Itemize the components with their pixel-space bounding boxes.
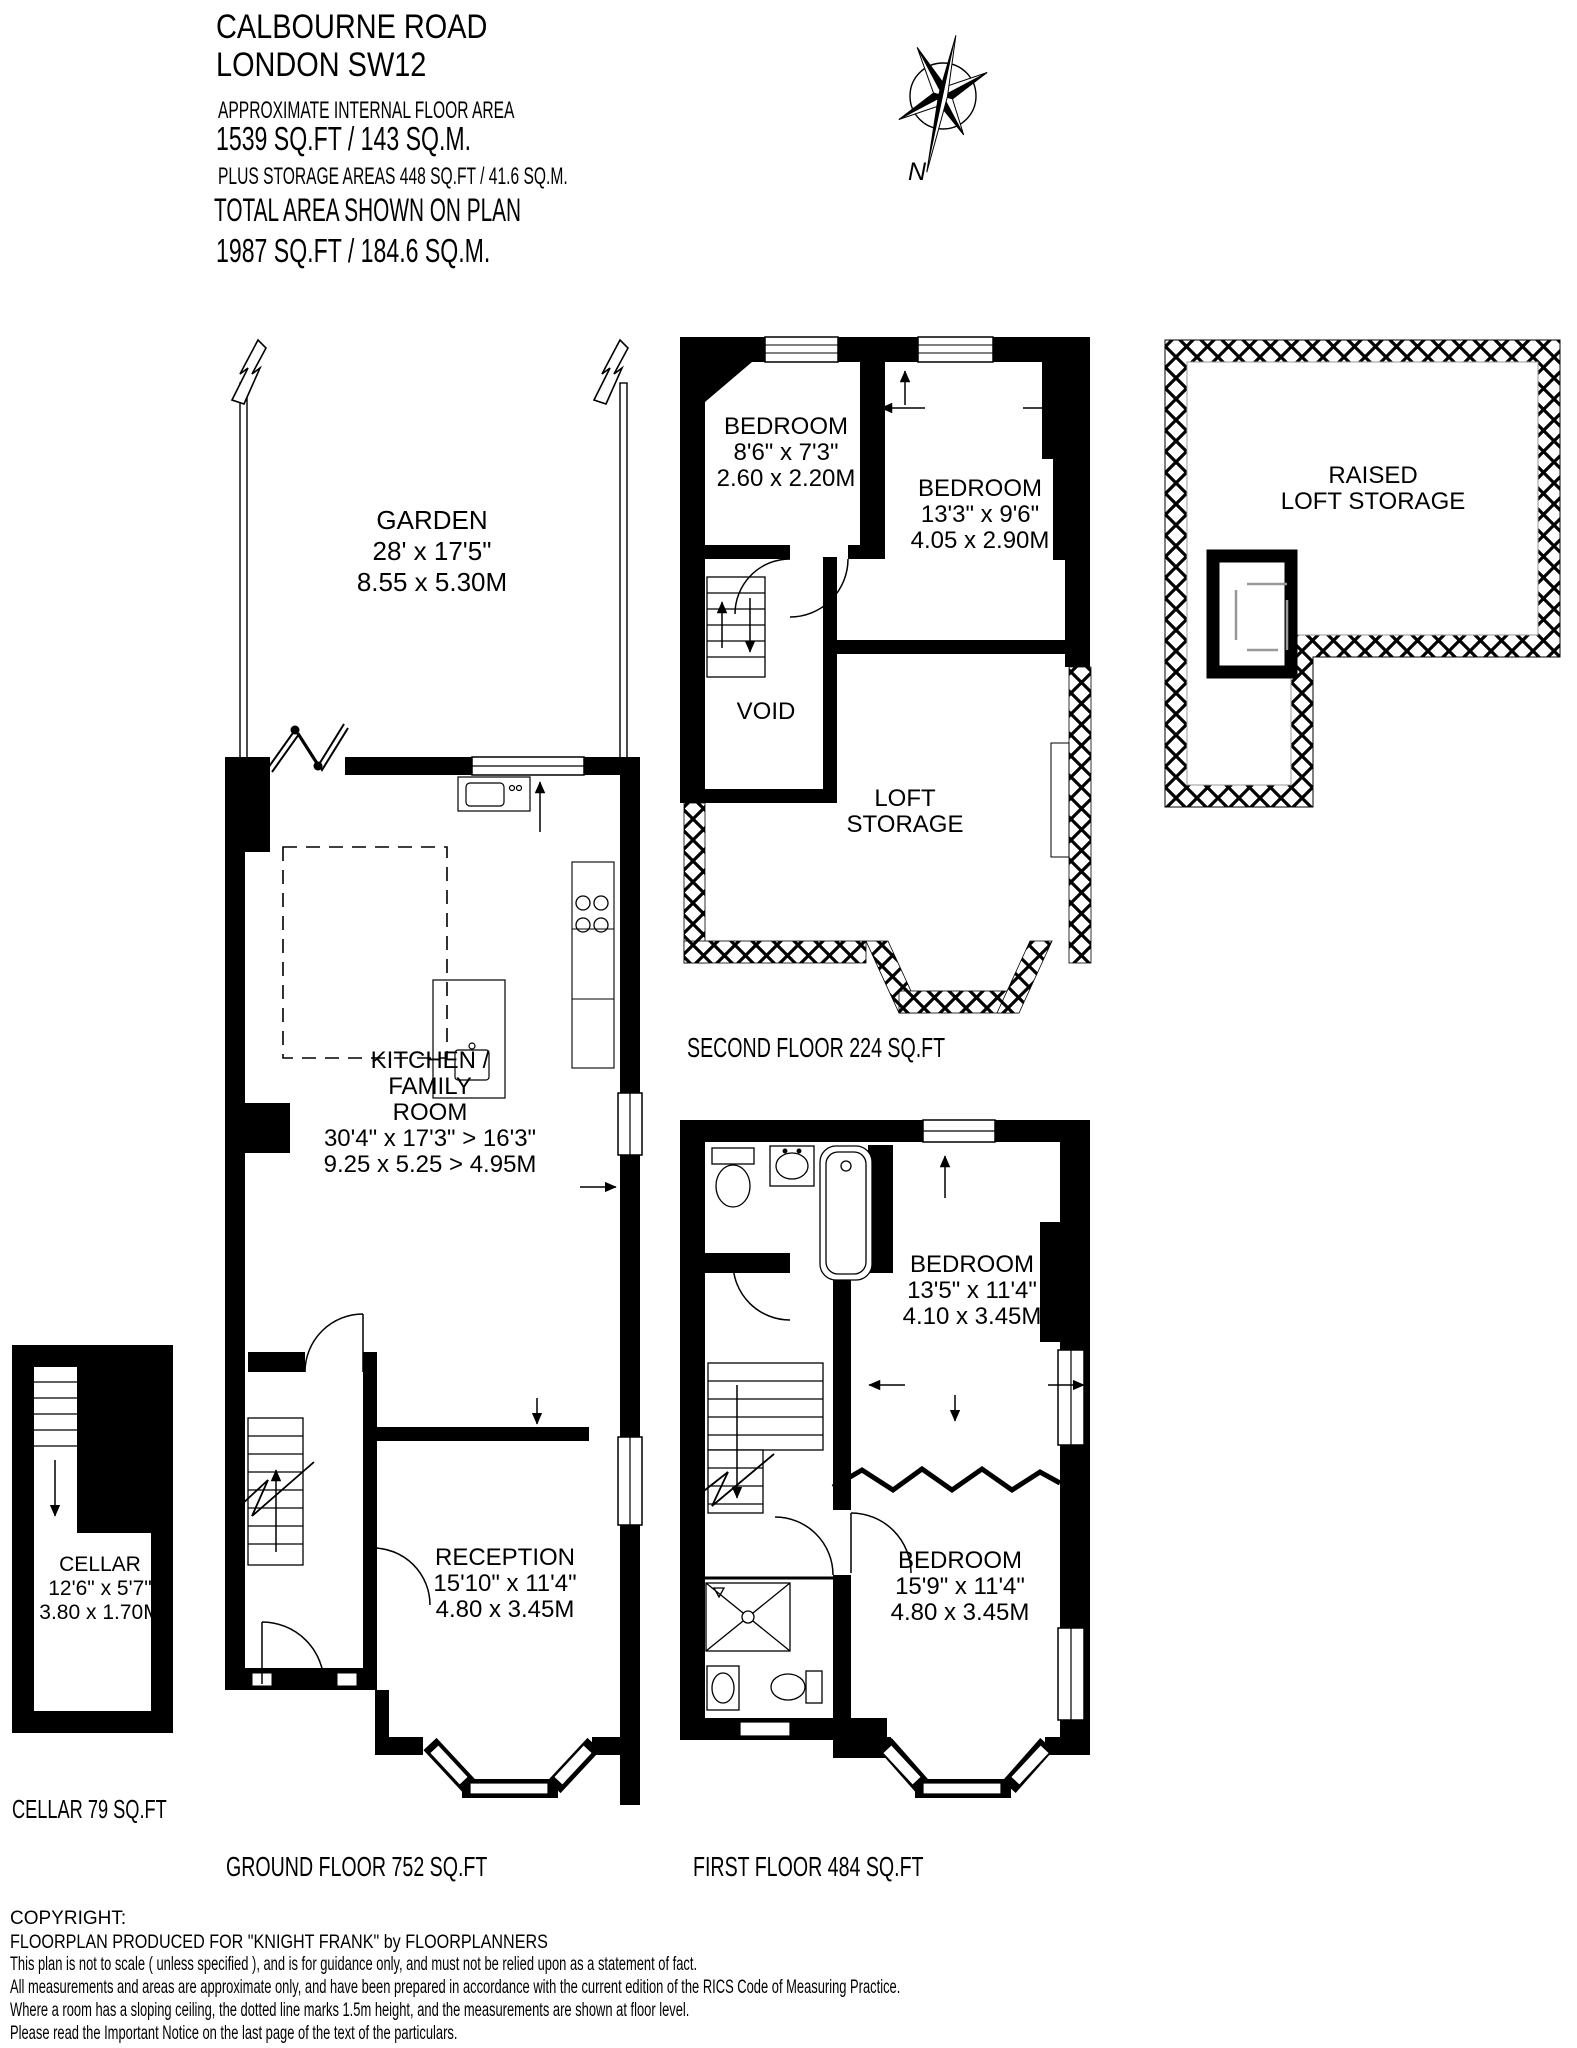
second-floor-caption: SECOND FLOOR 224 SQ.FT	[687, 1032, 1056, 1064]
approx-area-value: 1539 SQ.FT / 143 SQ.M.	[216, 120, 580, 158]
wardrobe-line	[833, 1469, 1060, 1490]
room-dims-ft: 30'4" x 17'3" > 16'3"	[324, 1126, 537, 1152]
storage-area-note: PLUS STORAGE AREAS 448 SQ.FT / 41.6 SQ.M…	[218, 163, 756, 191]
staircase	[240, 1418, 314, 1565]
room-dims-ft: 15'10" x 11'4"	[433, 1571, 576, 1597]
room-dims-m: 4.80 x 3.45M	[891, 1600, 1030, 1626]
cellar-label: CELLAR 12'6" x 5'7" 3.80 x 1.70M	[39, 1553, 160, 1625]
copyright-text: All measurements and areas are approxima…	[10, 1977, 900, 1999]
toilet-icon	[712, 1148, 754, 1207]
room-name: KITCHEN /	[324, 1048, 537, 1074]
room-name: FAMILY	[324, 1074, 537, 1100]
room-name: LOFT STORAGE	[1281, 489, 1466, 515]
room-dims-ft: 13'3" x 9'6"	[911, 502, 1050, 528]
room-dims-ft: 28' x 17'5"	[357, 536, 507, 567]
room-name: BEDROOM	[717, 414, 856, 440]
copyright-line6: Please read the Important Notice on the …	[10, 2023, 668, 2045]
room-dims-ft: 15'9" x 11'4"	[891, 1574, 1030, 1600]
floorplan-drawing	[0, 0, 1577, 2048]
room-dims-m: 9.25 x 5.25 > 4.95M	[324, 1152, 537, 1178]
caption-text: FIRST FLOOR 484 SQ.FT	[693, 1851, 924, 1883]
toilet-icon	[771, 1671, 822, 1703]
void-label: VOID	[737, 699, 796, 725]
room-dims-m: 2.60 x 2.20M	[717, 466, 856, 492]
total-area-value: 1987 SQ.FT / 184.6 SQ.M.	[216, 232, 608, 270]
basin-icon	[707, 1666, 739, 1710]
shower-icon	[706, 1583, 790, 1651]
room-dims-m: 4.10 x 3.45M	[903, 1304, 1042, 1330]
total-area-label: TOTAL AREA SHOWN ON PLAN	[214, 192, 686, 229]
room-name: BEDROOM	[911, 476, 1050, 502]
room-dims-m: 3.80 x 1.70M	[39, 1601, 160, 1625]
room-name: VOID	[737, 699, 796, 725]
copyright-text: Where a room has a sloping ceiling, the …	[10, 2000, 689, 2022]
first-floor-plan	[680, 1120, 1090, 1798]
room-dims-ft: 12'6" x 5'7"	[39, 1577, 160, 1601]
kitchen-sink	[458, 777, 530, 811]
copyright-line4: All measurements and areas are approxima…	[10, 1977, 1319, 1999]
page-title-line1: CALBOURNE ROAD	[216, 8, 535, 47]
loft-storage-label: LOFT STORAGE	[847, 786, 964, 838]
copyright-text: Please read the Important Notice on the …	[10, 2023, 457, 2045]
room-dims-m: 4.80 x 3.45M	[433, 1597, 576, 1623]
compass-icon	[873, 24, 1008, 173]
staircase	[707, 577, 765, 677]
basin-icon	[770, 1146, 814, 1186]
kitchen-label: KITCHEN / FAMILY ROOM 30'4" x 17'3" > 16…	[324, 1048, 537, 1178]
room-name: STORAGE	[847, 812, 964, 838]
staircase	[700, 1363, 823, 1513]
value-text: 1539 SQ.FT / 143 SQ.M.	[216, 120, 471, 158]
garden-label: GARDEN 28' x 17'5" 8.55 x 5.30M	[357, 505, 507, 598]
compass-north-label: N	[908, 158, 926, 187]
bedroom-second-large-label: BEDROOM 13'3" x 9'6" 4.05 x 2.90M	[911, 476, 1050, 554]
caption-text: GROUND FLOOR 752 SQ.FT	[226, 1851, 487, 1883]
bathtub-icon	[820, 1146, 872, 1280]
fence-break-icon	[232, 340, 628, 404]
caption-text: CELLAR 79 SQ.FT	[12, 1794, 167, 1825]
room-name: LOFT	[847, 786, 964, 812]
room-dims-ft: 8'6" x 7'3"	[717, 440, 856, 466]
floorplan-page: CALBOURNE ROAD LONDON SW12 APPROXIMATE I…	[0, 0, 1577, 2048]
copyright-line5: Where a room has a sloping ceiling, the …	[10, 2000, 1009, 2022]
copyright-line3: This plan is not to scale ( unless speci…	[10, 1954, 1020, 1976]
page-title-line2: LONDON SW12	[216, 46, 464, 85]
room-dims-m: 4.05 x 2.90M	[911, 528, 1050, 554]
room-name: CELLAR	[39, 1553, 160, 1577]
bedroom-first-front-label: BEDROOM 15'9" x 11'4" 4.80 x 3.45M	[891, 1548, 1030, 1626]
room-name: BEDROOM	[891, 1548, 1030, 1574]
raised-loft-storage-label: RAISED LOFT STORAGE	[1281, 463, 1466, 515]
garden-gate-icon	[268, 724, 348, 772]
room-name: RECEPTION	[433, 1545, 576, 1571]
bedroom-second-small-label: BEDROOM 8'6" x 7'3" 2.60 x 2.20M	[717, 414, 856, 492]
room-name: ROOM	[324, 1100, 537, 1126]
copyright-text: This plan is not to scale ( unless speci…	[10, 1954, 697, 1976]
title-text: LONDON SW12	[216, 46, 426, 85]
room-name: RAISED	[1281, 463, 1466, 489]
room-name: BEDROOM	[903, 1252, 1042, 1278]
room-dims-m: 8.55 x 5.30M	[357, 567, 507, 598]
ground-floor-caption: GROUND FLOOR 752 SQ.FT	[226, 1851, 599, 1883]
copyright-line1: COPYRIGHT:	[10, 1908, 126, 1930]
room-dims-ft: 13'5" x 11'4"	[903, 1278, 1042, 1304]
value-text: 1987 SQ.FT / 184.6 SQ.M.	[216, 232, 490, 270]
title-text: CALBOURNE ROAD	[216, 8, 487, 47]
copyright-text: FLOORPLAN PRODUCED FOR "KNIGHT FRANK" by…	[10, 1932, 548, 1954]
loft-recess	[1051, 743, 1069, 857]
ground-floor-plan	[225, 757, 642, 1805]
bedroom-first-rear-label: BEDROOM 13'5" x 11'4" 4.10 x 3.45M	[903, 1252, 1042, 1330]
sloping-ceiling-line	[283, 847, 447, 1058]
caption-text: SECOND FLOOR 224 SQ.FT	[687, 1032, 945, 1064]
label-text: TOTAL AREA SHOWN ON PLAN	[214, 192, 521, 229]
first-floor-caption: FIRST FLOOR 484 SQ.FT	[693, 1851, 1022, 1883]
raised-loft-storage-plan	[1165, 340, 1560, 807]
label-text: PLUS STORAGE AREAS 448 SQ.FT / 41.6 SQ.M…	[218, 163, 568, 191]
kitchen-counter	[572, 862, 614, 1068]
reception-label: RECEPTION 15'10" x 11'4" 4.80 x 3.45M	[433, 1545, 576, 1623]
copyright-line2: FLOORPLAN PRODUCED FOR "KNIGHT FRANK" by…	[10, 1932, 643, 1954]
loft-hatch	[1213, 556, 1291, 672]
direction-arrow	[881, 371, 1067, 408]
cellar-plan	[12, 1345, 173, 1733]
cellar-caption: CELLAR 79 SQ.FT	[12, 1794, 233, 1825]
room-name: GARDEN	[357, 505, 507, 536]
